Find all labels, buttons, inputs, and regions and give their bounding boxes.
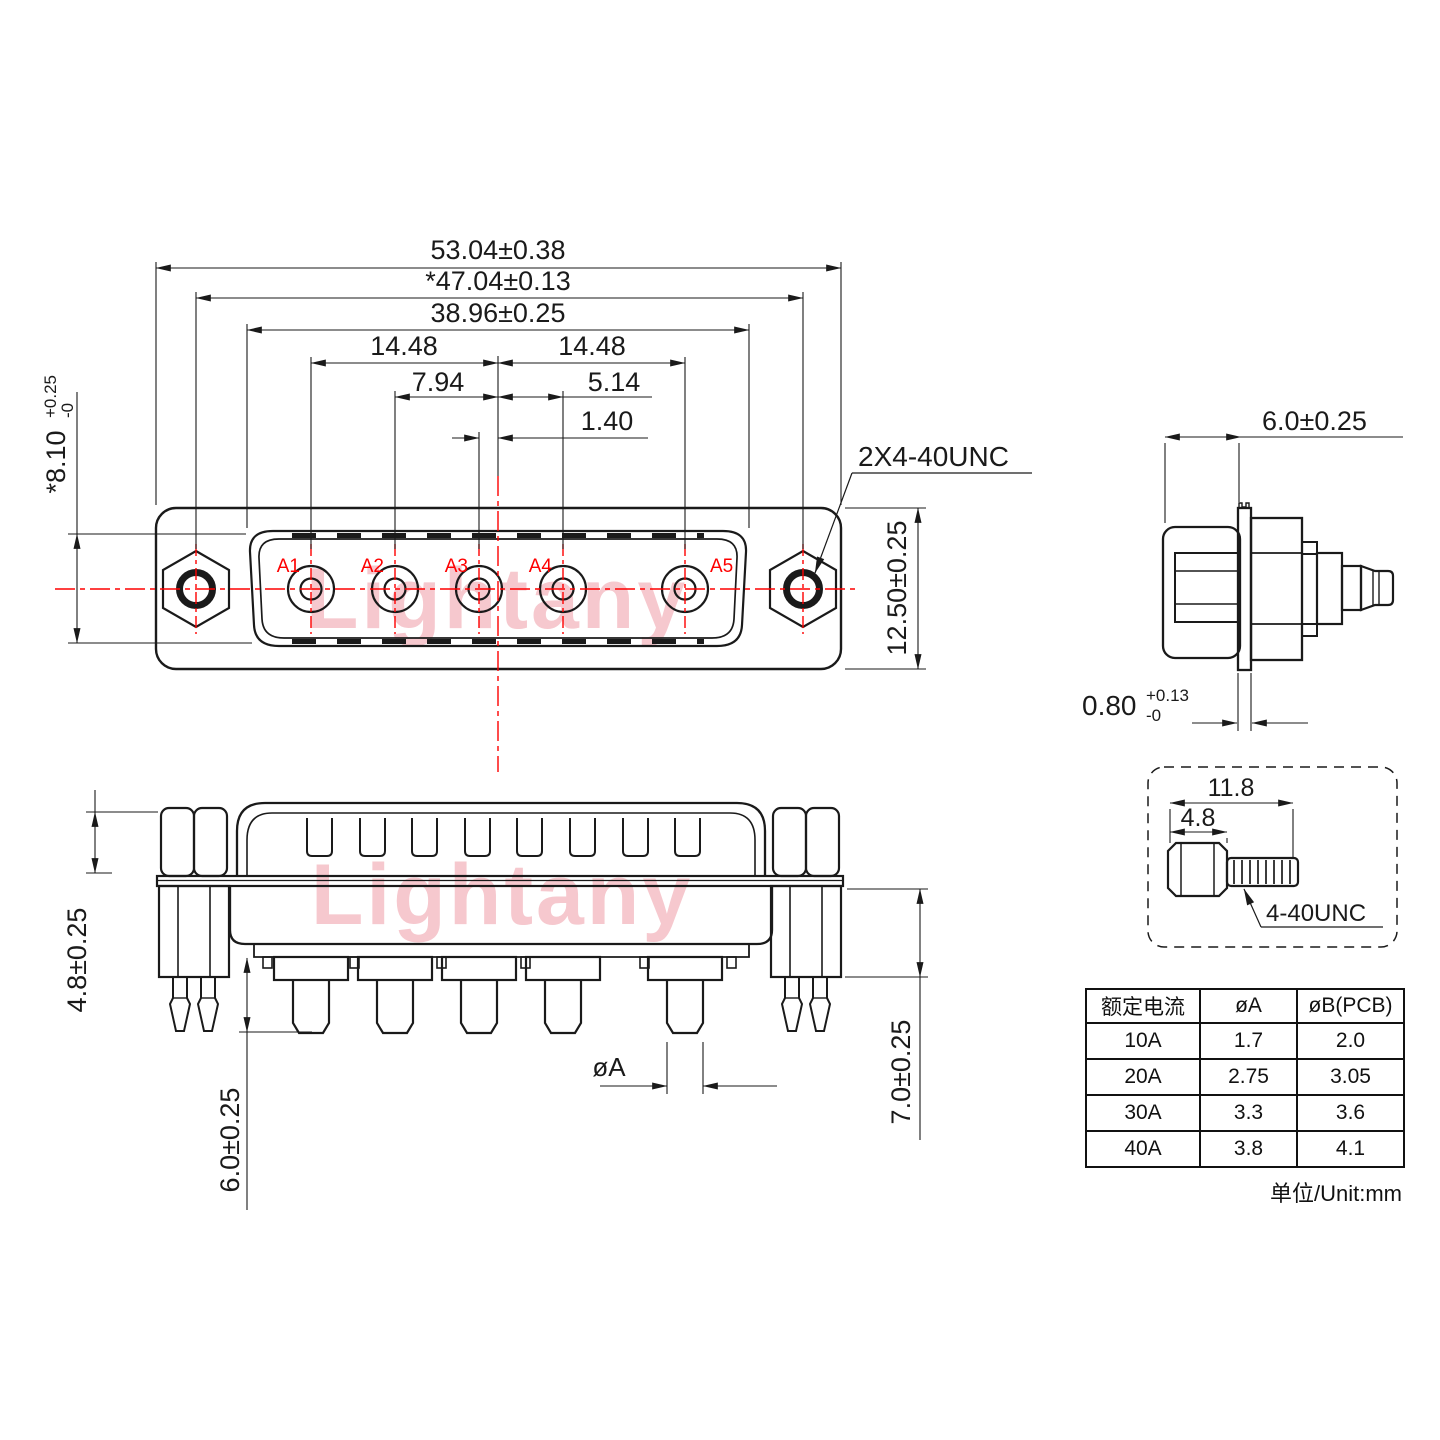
table-row: 40A 3.8 4.1 — [1086, 1131, 1404, 1167]
callout-mount-thread: 2X4-40UNC — [858, 441, 1009, 472]
connector-drawing: Lightany Lightany — [0, 0, 1440, 1440]
table-header-dia-b: øB(PCB) — [1297, 989, 1404, 1023]
unit-note: 单位/Unit:mm — [1085, 1176, 1402, 1208]
bottom-standoff-nut-left — [161, 808, 227, 876]
dim-flange-height-group: 12.50±0.25 — [882, 521, 912, 656]
dim-flange-height: 12.50±0.25 — [882, 521, 912, 656]
table-cell: 3.3 — [1200, 1095, 1297, 1131]
table-header-rated-current: 额定电流 — [1086, 989, 1200, 1023]
table-cell: 2.0 — [1297, 1023, 1404, 1059]
bottom-standoff-nut-right — [773, 808, 839, 876]
table-cell: 2.75 — [1200, 1059, 1297, 1095]
dim-screw-overall: 11.8 — [1208, 774, 1255, 802]
bottom-solder-pins — [293, 980, 703, 1033]
table-header-row: 额定电流 øA øB(PCB) — [1086, 989, 1404, 1023]
dim-flange-thickness-plus: +0.13 — [1146, 686, 1189, 705]
table-cell: 20A — [1086, 1059, 1200, 1095]
pin-label-a3: A3 — [445, 556, 468, 577]
pin-label-a4: A4 — [529, 556, 553, 577]
side-view: 6.0±0.25 0.80 +0.13 -0 — [1082, 406, 1403, 731]
table-row: 30A 3.3 3.6 — [1086, 1095, 1404, 1131]
dim-insert-height-group: *8.10 +0.25 -0 — [41, 375, 77, 494]
dim-screw-head: 4.8 — [1181, 804, 1216, 832]
dim-pin-length: 6.0±0.25 — [215, 1088, 245, 1193]
side-shroud — [1251, 518, 1317, 660]
dim-outer-width: 53.04±0.38 — [431, 235, 566, 265]
table-cell: 3.6 — [1297, 1095, 1404, 1131]
dim-mount-hole-span: *47.04±0.13 — [425, 266, 570, 296]
bottom-dimension-texts: 4.8±0.25 6.0±0.25 7.0±0.25 øA — [62, 908, 916, 1193]
table-cell: 4.1 — [1297, 1131, 1404, 1167]
dim-depth: 6.0±0.25 — [1262, 406, 1367, 436]
table-cell: 1.7 — [1200, 1023, 1297, 1059]
dim-pin-diameter: øA — [592, 1052, 626, 1082]
table-cell: 40A — [1086, 1131, 1200, 1167]
front-view: A1 A2 A3 A4 A5 — [41, 235, 1032, 772]
dim-pitch-right: 14.48 — [558, 331, 626, 361]
bottom-boardlock-right — [771, 886, 841, 1031]
side-dimension-lines — [1165, 437, 1403, 723]
table-row: 20A 2.75 3.05 — [1086, 1059, 1404, 1095]
table-row: 10A 1.7 2.0 — [1086, 1023, 1404, 1059]
dim-pitch-a2: 7.94 — [412, 367, 465, 397]
dim-insert-width: 38.96±0.25 — [431, 298, 566, 328]
dim-pitch-a3: 1.40 — [581, 406, 634, 436]
dim-flange-thickness-minus: -0 — [1146, 706, 1161, 725]
pin-label-a2: A2 — [361, 556, 384, 577]
dim-insert-height-minus: -0 — [58, 403, 77, 418]
dim-flange-thickness: 0.80 — [1082, 690, 1137, 721]
bottom-retention-tabs — [263, 957, 736, 968]
bottom-boardlock-left — [159, 886, 229, 1031]
bottom-contact-bosses — [274, 957, 722, 980]
screw-detail: 11.8 4.8 4-40UNC — [1148, 767, 1397, 947]
table-header-dia-a: øA — [1200, 989, 1297, 1023]
side-dimension-texts: 6.0±0.25 0.80 +0.13 -0 — [1082, 406, 1367, 725]
pin-label-a1: A1 — [277, 556, 300, 577]
watermark-logo: Lightany Lightany — [306, 551, 693, 943]
screw-hex-head — [1168, 843, 1227, 896]
side-center-contact — [1317, 553, 1393, 624]
screw-thread-shaft — [1227, 858, 1298, 886]
dim-boardlock-length: 7.0±0.25 — [886, 1020, 916, 1125]
dim-pitch-a4: 5.14 — [588, 367, 641, 397]
watermark-text-bottom: Lightany — [311, 847, 693, 943]
table-cell: 3.8 — [1200, 1131, 1297, 1167]
table-cell: 3.05 — [1297, 1059, 1404, 1095]
dim-insert-height: *8.10 — [41, 430, 71, 493]
callout-screw-thread: 4-40UNC — [1266, 900, 1366, 927]
dim-pitch-left: 14.48 — [370, 331, 438, 361]
table-cell: 30A — [1086, 1095, 1200, 1131]
side-jackscrew-standoff — [1175, 553, 1238, 622]
front-thread-leader — [815, 473, 1032, 573]
current-rating-table: 额定电流 øA øB(PCB) 10A 1.7 2.0 20A 2.75 3.0… — [1085, 988, 1405, 1168]
technical-drawing-page: Lightany Lightany — [0, 0, 1440, 1440]
bottom-insulator-ledge — [254, 944, 749, 957]
screw-dimension-texts: 11.8 4.8 4-40UNC — [1181, 774, 1366, 927]
dim-standoff-height: 4.8±0.25 — [62, 908, 92, 1013]
pin-label-a5: A5 — [710, 556, 733, 577]
table-cell: 10A — [1086, 1023, 1200, 1059]
